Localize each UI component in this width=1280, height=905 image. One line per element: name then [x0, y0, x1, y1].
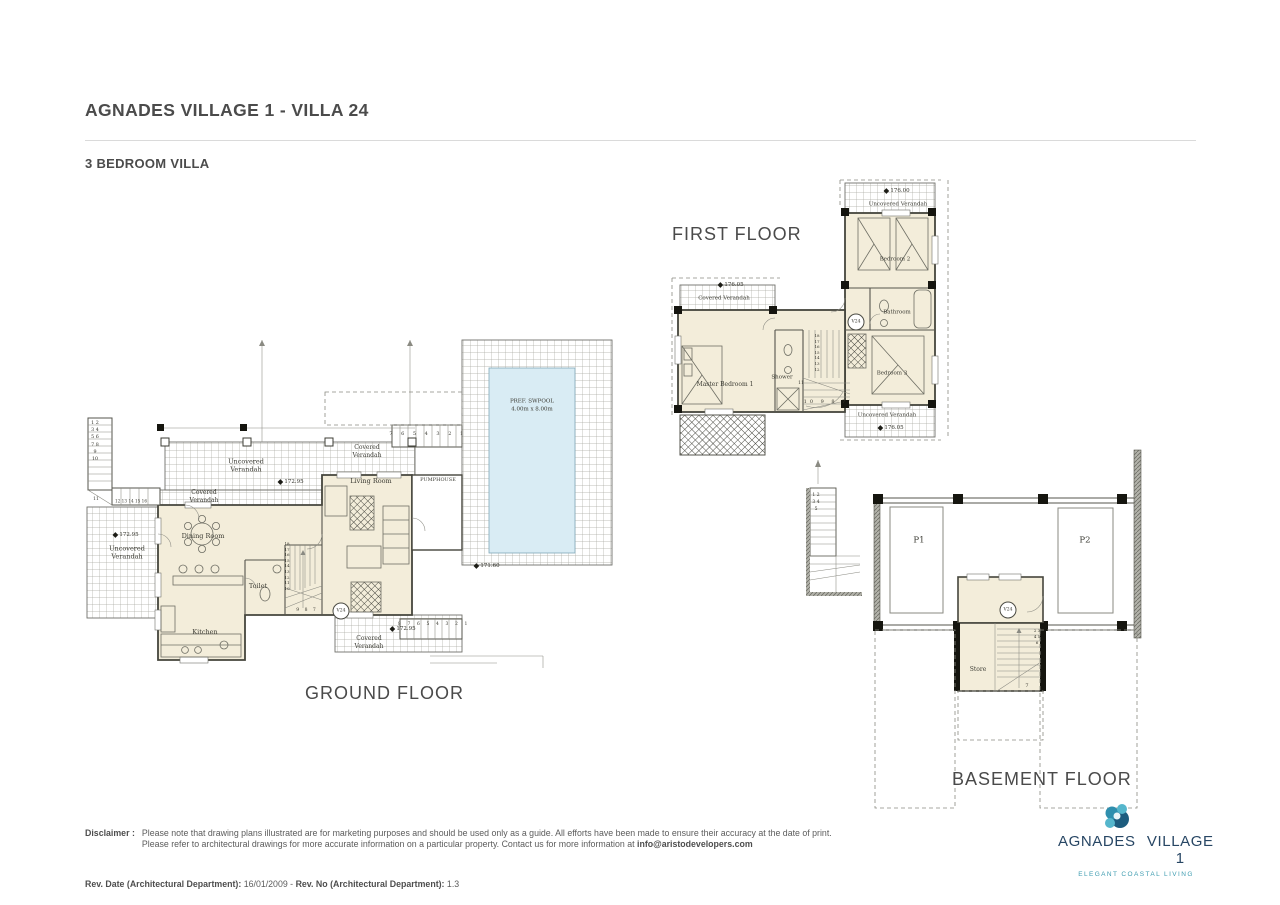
bf-label-parking-2: P2 — [1079, 535, 1090, 546]
gf-swimming-pool — [489, 368, 575, 553]
bf-villa-marker: V24 — [1000, 602, 1017, 619]
ff-label-bedroom-2: Bedroom 2 — [880, 256, 911, 263]
gf-stairs-left-run-numbers: 12 13 14 15 16 — [115, 498, 147, 503]
logo-name-right: VILLAGE 1 — [1147, 833, 1214, 867]
rev-no-value: 1.3 — [444, 879, 459, 889]
bf-external-stairs — [806, 460, 862, 596]
gf-stairs-top-numbers: 7 6 5 4 3 2 1 — [389, 431, 466, 438]
ff-stairs-column-numbers: 18 17 16 15 14 13 12 — [813, 333, 822, 372]
gf-label-covered-verandah-upper: Covered Verandah — [349, 444, 385, 460]
bf-store-stair-last-number: 7 — [1025, 683, 1028, 690]
ff-label-shower: Shower — [771, 374, 792, 381]
logo-name: AGNADES VILLAGE 1 — [1058, 833, 1214, 867]
gf-label-covered-verandah-bottom: Covered Verandah — [351, 635, 387, 651]
revision-line: Rev. Date (Architectural Department): 16… — [85, 879, 459, 889]
gf-level-top: 172.95 — [278, 479, 303, 485]
page-subtitle: 3 BEDROOM VILLA — [85, 156, 209, 171]
disclaimer-email: info@aristodevelopers.com — [637, 839, 753, 849]
ff-level-top: 176.00 — [884, 188, 909, 194]
ff-villa-marker: V24 — [848, 314, 865, 331]
plan-sheet: AGNADES VILLAGE 1 - VILLA 24 3 BEDROOM V… — [0, 0, 1280, 905]
gf-level-left: 172.95 — [113, 532, 138, 538]
rev-date-value: 16/01/2009 - — [241, 879, 295, 889]
rev-no-label: Rev. No (Architectural Department): — [296, 879, 445, 889]
gf-label-pool-name: PREF. SWPOOL — [497, 398, 567, 405]
ff-label-uncovered-verandah-bottom: Uncovered Verandah — [858, 412, 917, 419]
benchmark-icon — [278, 479, 284, 485]
header-divider — [85, 140, 1196, 141]
ff-label-uncovered-verandah-top: Uncovered Verandah — [869, 201, 928, 208]
gf-level-pool-value: 171.60 — [480, 563, 499, 569]
benchmark-icon — [878, 425, 884, 431]
gf-label-pool-size: 4.00m x 8.00m — [497, 406, 567, 413]
first-floor-drawing — [660, 178, 950, 468]
gf-stairs-bottom-numbers: 8 7 6 5 4 3 2 1 — [398, 622, 470, 628]
ff-level-left: 176.05 — [718, 282, 743, 288]
gf-stairs-left-numbers: 1 2 3 4 5 6 7 8 9 10 — [90, 420, 100, 463]
bf-label-store: Store — [970, 666, 987, 674]
ff-level-top-value: 176.00 — [890, 188, 909, 194]
bf-store-stair-numbers: 2 3 4 5 6 — [1033, 628, 1041, 645]
gf-level-top-value: 172.95 — [284, 479, 303, 485]
disclaimer-line1: Please note that drawing plans illustrat… — [142, 828, 832, 838]
logo-shell-icon — [1100, 802, 1134, 832]
disclaimer-line2: Please refer to architectural drawings f… — [142, 839, 637, 849]
basement-floor-title: BASEMENT FLOOR — [952, 769, 1132, 790]
gf-stairs-interior-column: 18 17 16 15 14 13 12 11 10 — [283, 541, 292, 591]
gf-label-uncovered-verandah-top: Uncovered Verandah — [224, 458, 268, 475]
ff-level-left-value: 176.05 — [724, 282, 743, 288]
ground-floor-drawing — [85, 338, 645, 670]
ff-stairs-bottom-numbers: 10 9 8 7 — [804, 399, 849, 406]
benchmark-icon — [474, 563, 480, 569]
bf-external-stair-numbers: 1 2 3 4 5 — [812, 493, 821, 513]
disclaimer-label: Disclaimer : — [85, 828, 135, 851]
gf-label-pumphouse: PUMPHOUSE — [408, 477, 468, 484]
benchmark-icon — [884, 188, 890, 194]
benchmark-icon — [113, 532, 119, 538]
ff-roof-hatch — [680, 415, 765, 455]
ff-label-covered-verandah: Covered Verandah — [698, 295, 750, 302]
gf-label-toilet: Toilet — [238, 582, 278, 590]
ff-level-bottom: 176.05 — [878, 425, 903, 431]
benchmark-icon — [718, 282, 724, 288]
gf-label-covered-verandah-left: Covered Verandah — [186, 489, 222, 505]
ff-level-bottom-value: 176.05 — [884, 425, 903, 431]
gf-level-left-value: 172.95 — [119, 532, 138, 538]
rev-date-label: Rev. Date (Architectural Department): — [85, 879, 241, 889]
gf-pumphouse-room — [412, 475, 462, 550]
logo-name-left: AGNADES — [1058, 833, 1136, 867]
bf-label-parking-1: P1 — [913, 535, 924, 546]
developer-logo: AGNADES VILLAGE 1 ELEGANT COASTAL LIVING — [1058, 802, 1214, 878]
gf-label-uncovered-verandah-left: Uncovered Verandah — [104, 545, 150, 562]
first-floor-title: FIRST FLOOR — [672, 224, 802, 245]
gf-label-kitchen: Kitchen — [175, 628, 235, 636]
page-title: AGNADES VILLAGE 1 - VILLA 24 — [85, 100, 369, 121]
logo-tagline: ELEGANT COASTAL LIVING — [1058, 871, 1214, 878]
ff-stairs-turn-number: 11 — [798, 381, 804, 387]
gf-stairs-interior-row: 9 8 7 — [296, 608, 317, 614]
disclaimer-text: Please note that drawing plans illustrat… — [142, 828, 832, 851]
disclaimer: Disclaimer : Please note that drawing pl… — [85, 828, 1125, 851]
gf-level-pool-deck: 171.60 — [474, 563, 499, 569]
gf-label-living-room: Living Room — [331, 477, 411, 485]
basement-floor-drawing — [805, 448, 1150, 818]
ground-floor-title: GROUND FLOOR — [305, 683, 464, 704]
gf-villa-marker: V24 — [333, 603, 350, 620]
ff-label-bathroom: Bathroom — [883, 309, 911, 316]
ff-label-master-bedroom: Master Bedroom 1 — [697, 381, 754, 389]
gf-label-dining-room: Dining Room — [163, 532, 243, 540]
benchmark-icon — [390, 626, 396, 632]
gf-stairs-left-turn-number: 11 — [93, 497, 99, 503]
ff-label-bedroom-3: Bedroom 3 — [877, 370, 908, 377]
